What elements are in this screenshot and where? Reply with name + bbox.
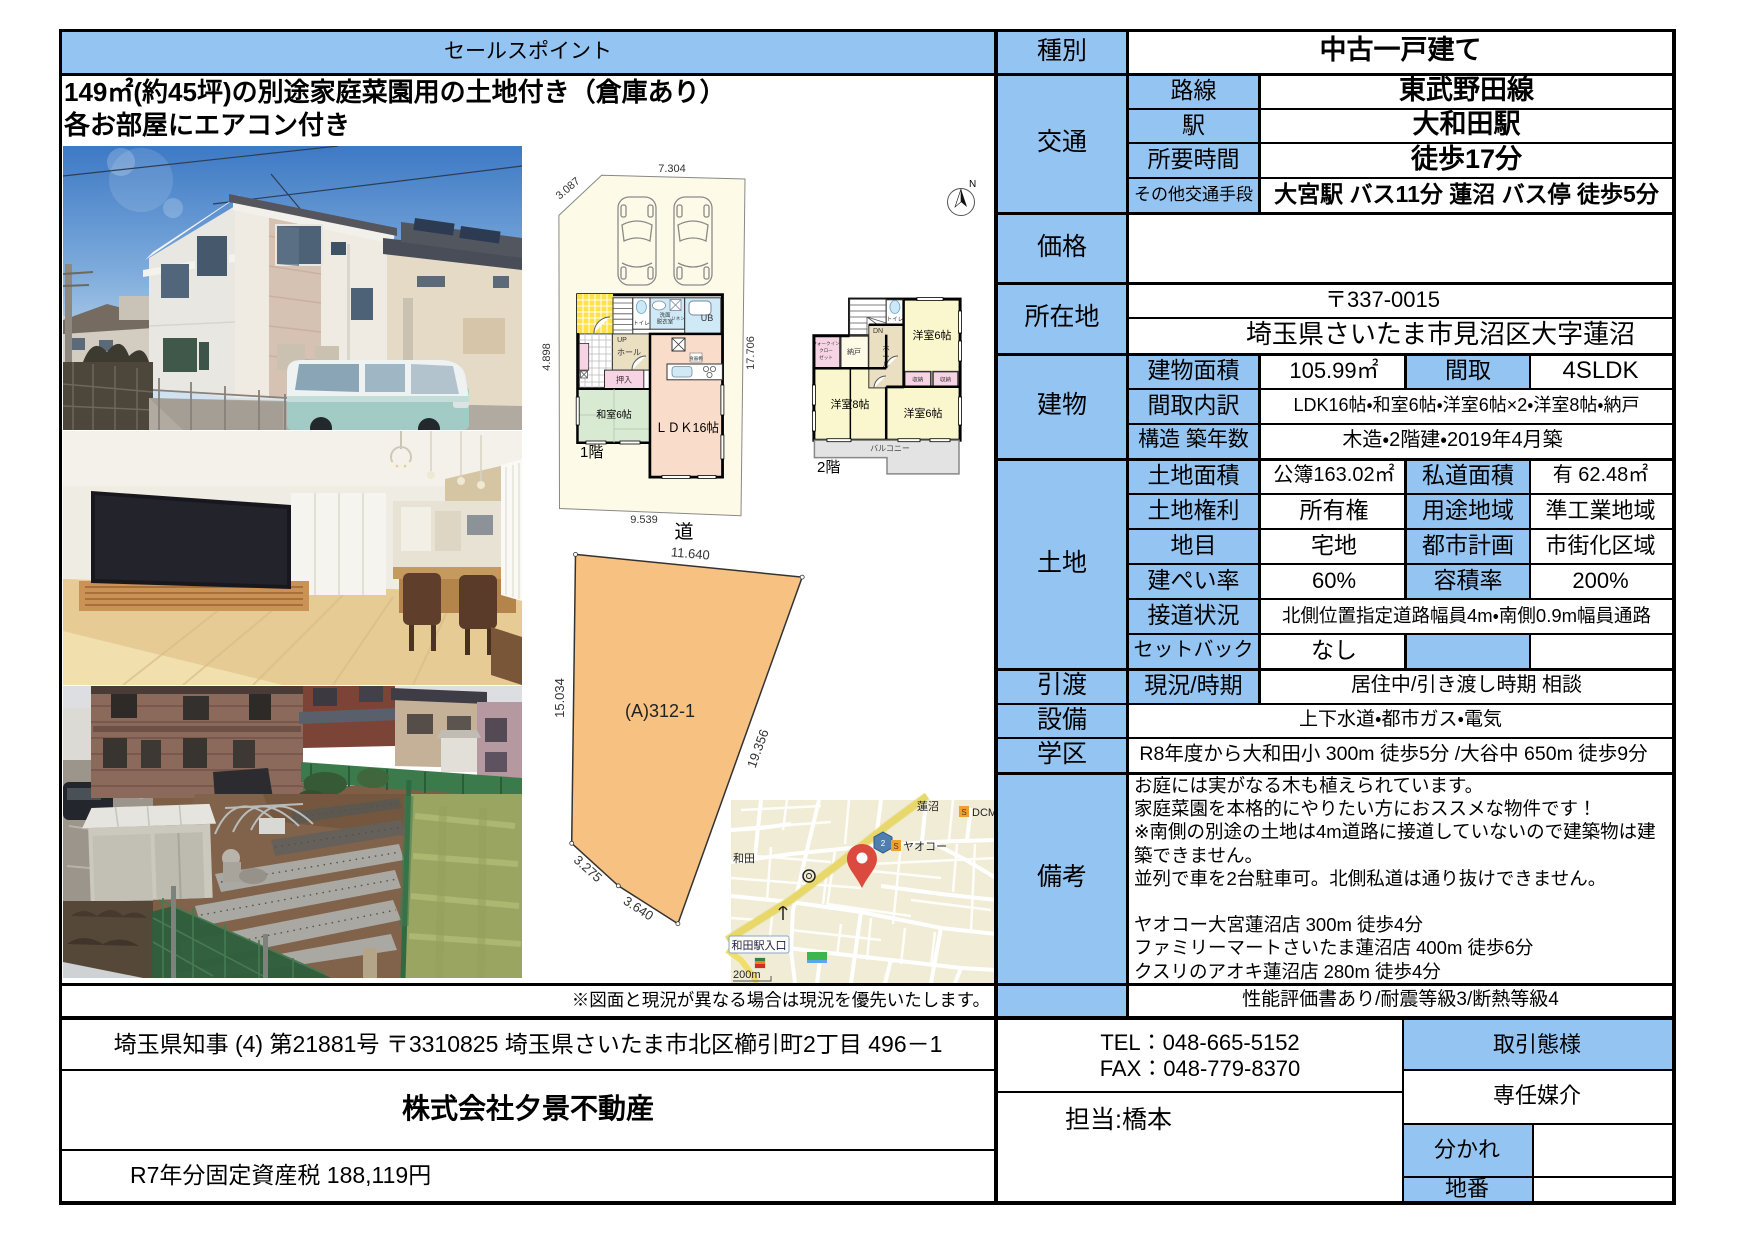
svg-text:S: S	[893, 842, 898, 851]
svg-text:押入: 押入	[616, 375, 632, 385]
svg-text:ＬＤＫ16帖: ＬＤＫ16帖	[655, 420, 719, 435]
svg-text:DN: DN	[873, 328, 883, 335]
svg-text:4.898: 4.898	[541, 343, 553, 371]
svg-text:納戸: 納戸	[847, 347, 861, 356]
svg-text:洋室8帖: 洋室8帖	[830, 397, 869, 411]
svg-text:蓮沼: 蓮沼	[917, 799, 939, 813]
svg-text:19.356: 19.356	[744, 727, 772, 769]
svg-text:収納: 収納	[940, 376, 952, 384]
svg-text:200m: 200m	[733, 969, 761, 981]
svg-text:和田: 和田	[733, 852, 755, 865]
svg-text:洋室6帖: 洋室6帖	[912, 328, 951, 342]
svg-text:収納: 収納	[912, 376, 924, 384]
svg-text:バルコニー: バルコニー	[870, 444, 910, 453]
svg-text:ウォークイン: ウォークイン	[812, 340, 840, 347]
svg-text:ゼット: ゼット	[819, 354, 833, 360]
svg-text:15.034: 15.034	[552, 678, 567, 718]
svg-text:(A)312-1: (A)312-1	[625, 701, 695, 721]
svg-text:食器棚: 食器棚	[689, 355, 703, 362]
svg-text:道: 道	[674, 521, 693, 540]
svg-text:トイレ: トイレ	[633, 321, 650, 327]
svg-text:UB: UB	[701, 313, 714, 323]
svg-text:S: S	[961, 808, 966, 817]
svg-text:2階: 2階	[817, 459, 840, 476]
svg-text:洋室6帖: 洋室6帖	[903, 406, 942, 420]
svg-text:UP: UP	[617, 337, 627, 344]
svg-text:ホール: ホール	[617, 348, 641, 357]
svg-text:7.304: 7.304	[658, 163, 686, 175]
svg-text:N: N	[969, 179, 976, 190]
svg-text:ヤオコー: ヤオコー	[903, 840, 947, 853]
svg-text:9.539: 9.539	[630, 514, 658, 526]
svg-text:和室6帖: 和室6帖	[596, 408, 632, 421]
svg-text:2: 2	[881, 839, 886, 848]
svg-text:和田駅入口: 和田駅入口	[732, 939, 787, 952]
svg-text:17.706: 17.706	[745, 336, 757, 370]
svg-text:11.640: 11.640	[670, 544, 710, 562]
svg-text:トイレ: トイレ	[887, 317, 904, 323]
svg-text:DCM: DCM	[972, 807, 994, 819]
svg-text:1階: 1階	[580, 444, 603, 461]
svg-text:洗面: 洗面	[659, 311, 671, 319]
